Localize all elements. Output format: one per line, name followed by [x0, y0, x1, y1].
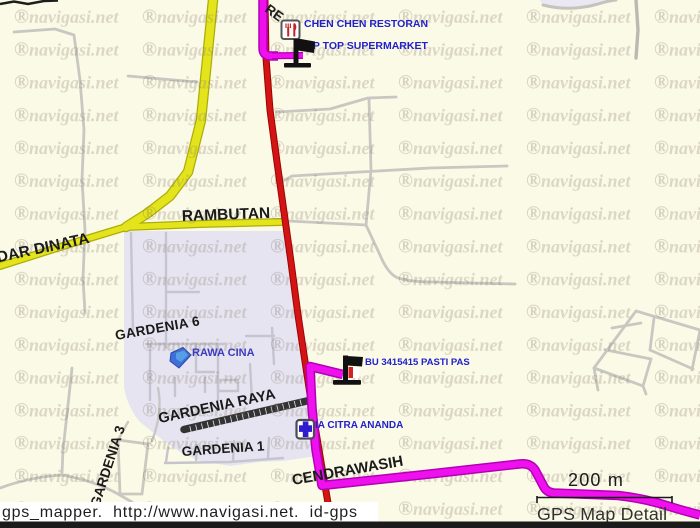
svg-text:gps_mapper. http://www.naviga: gps_mapper. http://www.navigasi.net. id-… — [2, 504, 358, 521]
svg-text:RAWA CINA: RAWA CINA — [192, 347, 255, 359]
svg-text:GPS Map Detail: GPS Map Detail — [537, 504, 667, 524]
svg-text:200 m: 200 m — [568, 470, 624, 490]
svg-text:IP TOP SUPERMARKET: IP TOP SUPERMARKET — [310, 40, 428, 52]
svg-text:IA CITRA ANANDA: IA CITRA ANANDA — [315, 420, 403, 431]
svg-text:BU 3415415 PASTI PAS: BU 3415415 PASTI PAS — [365, 357, 470, 368]
svg-text:RAMBUTAN: RAMBUTAN — [182, 205, 271, 225]
svg-text:CHEN CHEN RESTORAN: CHEN CHEN RESTORAN — [304, 18, 428, 30]
